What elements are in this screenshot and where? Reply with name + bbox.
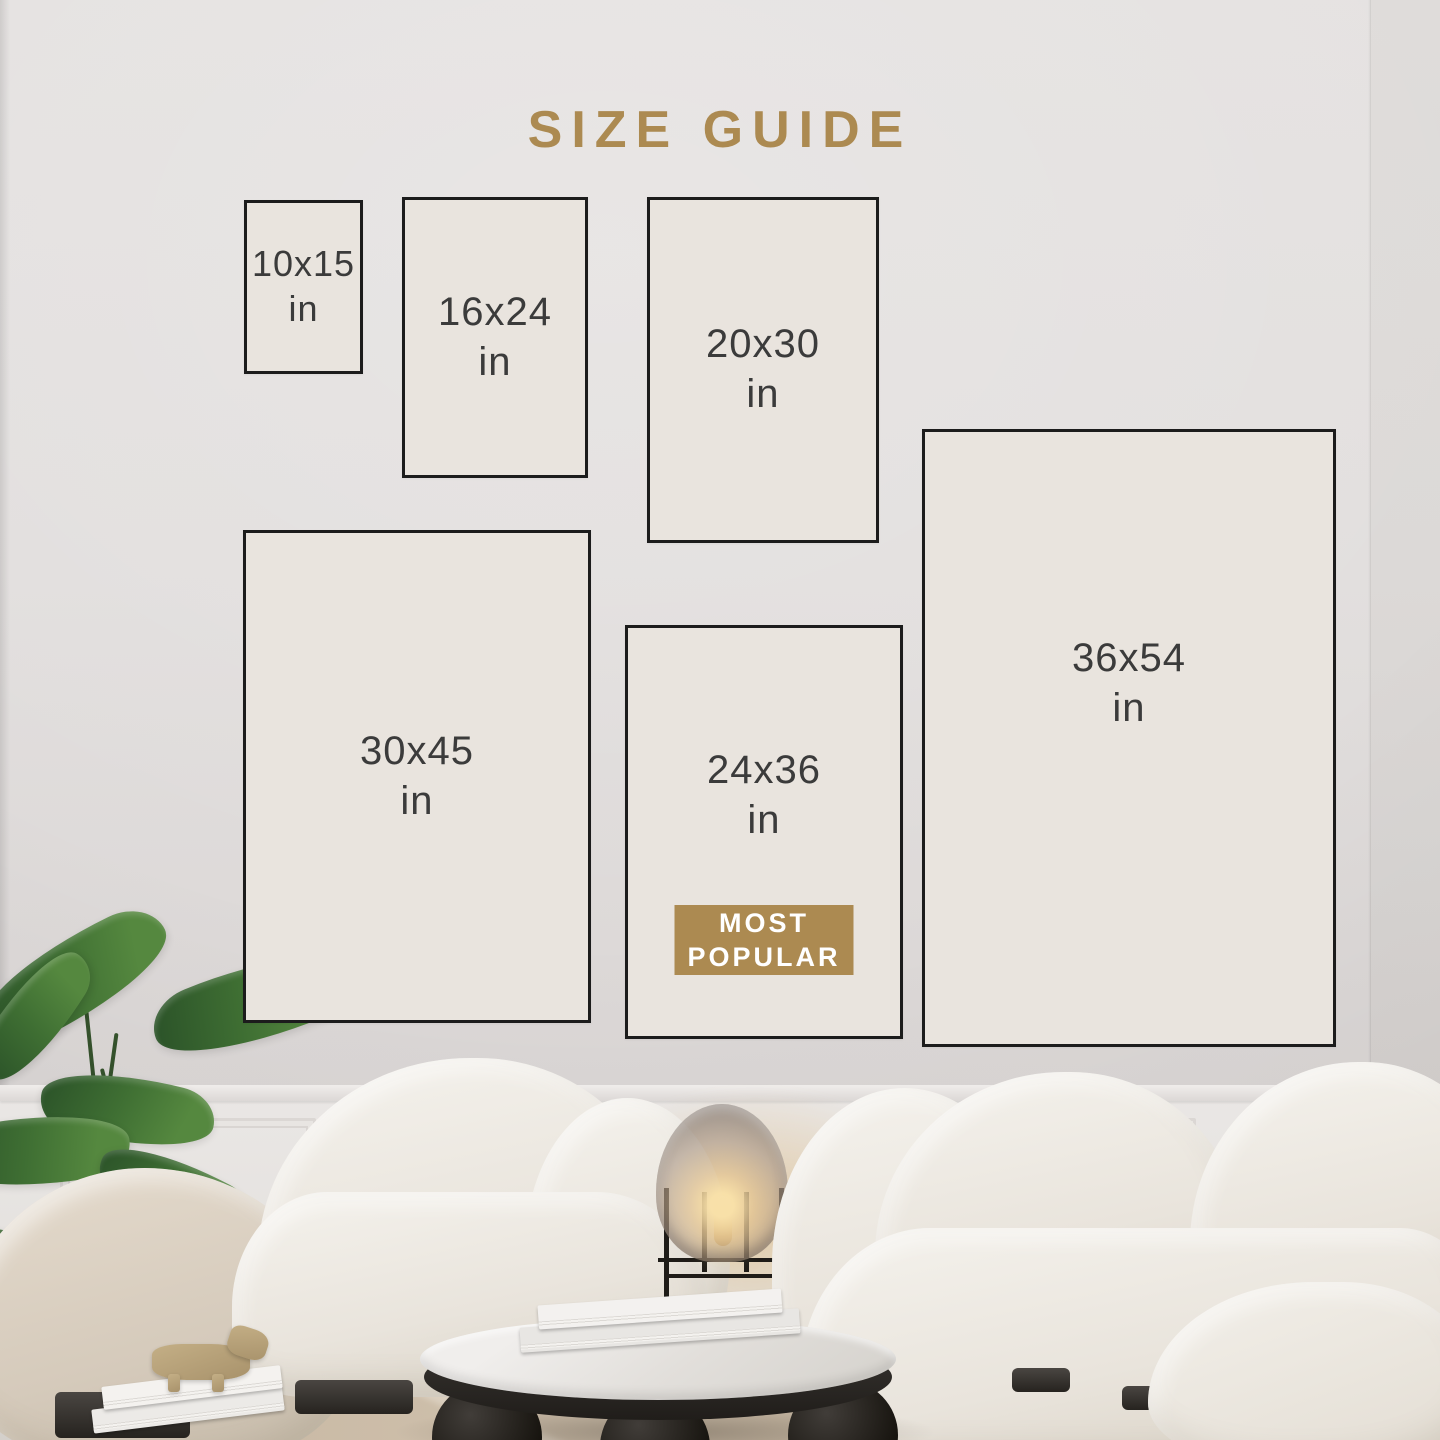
size-unit: in — [706, 370, 820, 420]
size-box-24x36: 24x36 in MOST POPULAR — [625, 625, 903, 1039]
sofa-foot — [1012, 1368, 1070, 1392]
size-label: 30x45 in — [360, 727, 474, 826]
size-label: 10x15 in — [252, 242, 355, 331]
size-dimensions: 30x45 — [360, 727, 474, 777]
size-box-30x45: 30x45 in — [243, 530, 591, 1023]
size-box-20x30: 20x30 in — [647, 197, 879, 543]
size-dimensions: 20x30 — [706, 320, 820, 370]
armchair-foot — [295, 1380, 413, 1414]
size-label: 16x24 in — [438, 288, 552, 387]
size-dimensions: 10x15 — [252, 242, 355, 287]
badge-line-1: MOST — [719, 906, 809, 940]
size-label: 36x54 in — [1072, 634, 1186, 733]
lamp-crossbar — [664, 1274, 784, 1278]
size-guide-product-image: SIZE GUIDE 10x15 in 16x24 in 20x30 in 30… — [0, 0, 1440, 1440]
size-label: 20x30 in — [706, 320, 820, 419]
size-unit: in — [252, 287, 355, 332]
size-dimensions: 16x24 — [438, 288, 552, 338]
most-popular-badge: MOST POPULAR — [675, 905, 854, 975]
size-unit: in — [438, 338, 552, 388]
wall-corner-left — [0, 0, 10, 1120]
size-unit: in — [707, 796, 821, 846]
size-unit: in — [360, 777, 474, 827]
size-box-16x24: 16x24 in — [402, 197, 588, 478]
size-dimensions: 36x54 — [1072, 634, 1186, 684]
size-box-10x15: 10x15 in — [244, 200, 363, 374]
size-dimensions: 24x36 — [707, 746, 821, 796]
figurine-leg — [168, 1374, 180, 1392]
size-label: 24x36 in — [707, 746, 821, 845]
badge-line-2: POPULAR — [687, 940, 840, 974]
size-box-36x54: 36x54 in — [922, 429, 1336, 1047]
wall-right-shade — [1370, 0, 1440, 1100]
size-guide-title: SIZE GUIDE — [0, 100, 1440, 160]
size-unit: in — [1072, 684, 1186, 734]
figurine-leg — [212, 1374, 224, 1392]
